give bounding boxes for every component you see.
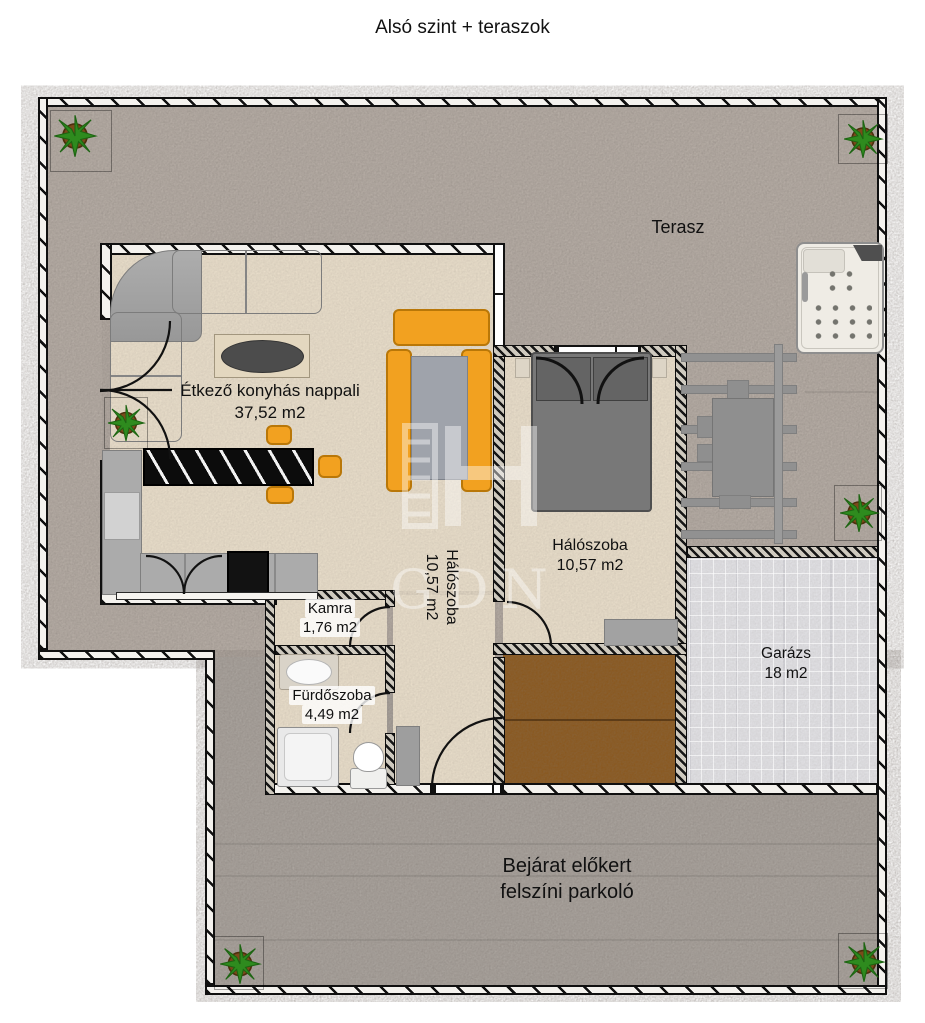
- room-label-bathroom: Fürdőszoba 4,49 m2: [262, 686, 402, 724]
- room-label-garage-name: Garázs: [736, 644, 836, 664]
- entry-door-arc: [432, 718, 502, 788]
- watermark: GDN: [383, 408, 568, 623]
- plant-top-right: [842, 116, 884, 162]
- floor-plan-page: GDN Alsó szint + teraszok Terasz Étkező …: [0, 0, 925, 1023]
- cabinet-door-arc-left: [146, 556, 184, 594]
- room-label-bathroom-area: 4,49 m2: [302, 705, 362, 724]
- room-label-bedroom-right-area: 10,57 m2: [520, 556, 660, 576]
- plant-garage: [838, 489, 880, 537]
- room-label-living: Étkező konyhás nappali 37,52 m2: [120, 380, 420, 424]
- room-label-garage-area: 18 m2: [736, 664, 836, 684]
- area-label-parking-line1: Bejárat előkert: [437, 854, 697, 880]
- area-label-parking: Bejárat előkert felszíni parkoló: [437, 854, 697, 905]
- bed-blanket-arc-right: [598, 358, 644, 404]
- room-label-kamra: Kamra 1,76 m2: [268, 599, 392, 637]
- room-label-garage: Garázs 18 m2: [736, 644, 836, 684]
- room-label-terasz: Terasz: [598, 216, 758, 239]
- area-label-parking-line2: felszíni parkoló: [437, 880, 697, 906]
- room-label-kamra-area: 1,76 m2: [300, 618, 360, 637]
- cabinet-door-arc-right: [184, 556, 222, 594]
- room-label-living-name: Étkező konyhás nappali: [120, 380, 420, 402]
- plant-top-left: [52, 112, 98, 160]
- room-label-bedroom-right-name: Hálószoba: [520, 536, 660, 556]
- room-label-bedroom-mid-name: Hálószoba: [441, 517, 461, 657]
- plant-bottom-right: [842, 937, 886, 987]
- page-title: Alsó szint + teraszok: [0, 16, 925, 40]
- bed-blanket-arc-left: [536, 358, 582, 404]
- room-label-bedroom-mid-area: 10,57 m2: [420, 517, 440, 657]
- plant-bottom-left: [218, 940, 262, 988]
- room-label-bedroom-right: Hálószoba 10,57 m2: [520, 536, 660, 577]
- room-label-bathroom-name: Fürdőszoba: [289, 686, 374, 705]
- room-label-kamra-name: Kamra: [305, 599, 355, 618]
- room-label-bedroom-mid: Hálószoba 10,57 m2: [413, 517, 461, 657]
- room-label-living-area: 37,52 m2: [120, 402, 420, 424]
